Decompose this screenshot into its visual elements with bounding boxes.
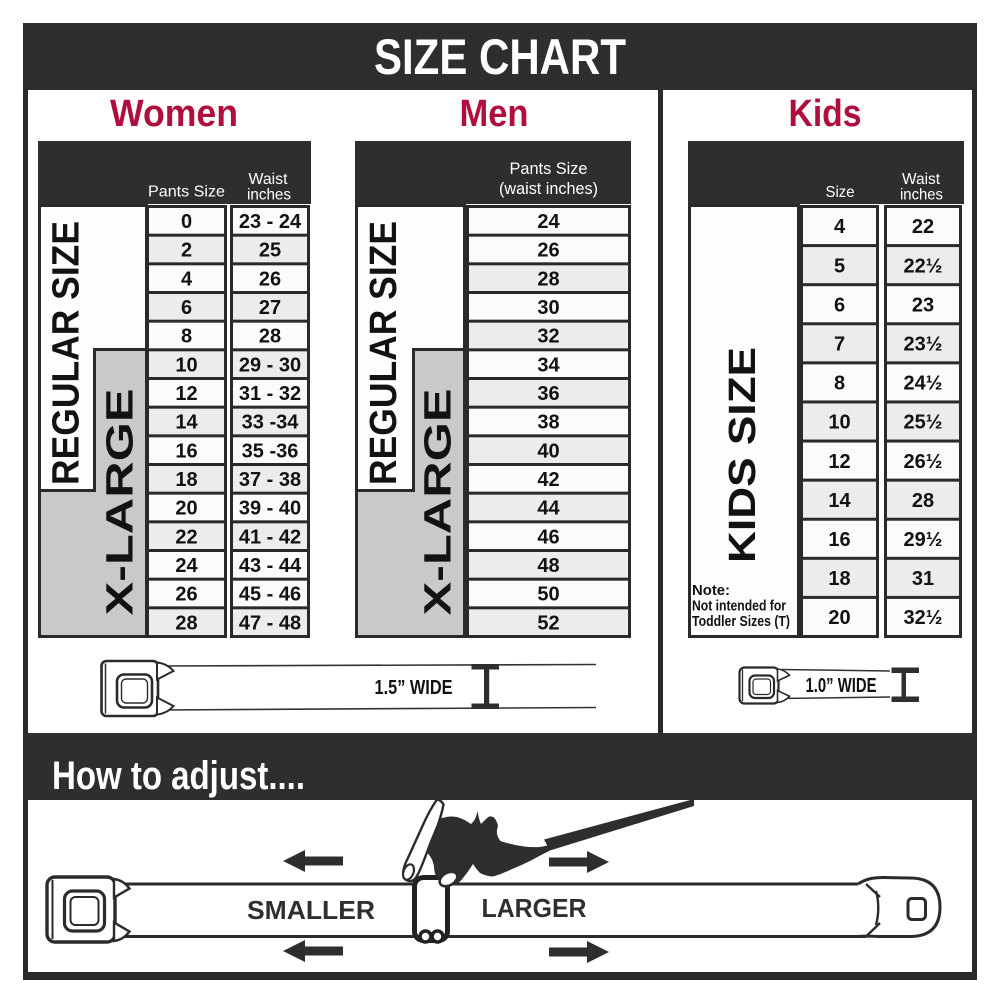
svg-text:29½: 29½ (904, 529, 943, 551)
svg-text:28: 28 (537, 268, 559, 290)
svg-text:31 - 32: 31 - 32 (239, 383, 301, 405)
svg-text:28: 28 (259, 326, 281, 348)
svg-text:37 - 38: 37 - 38 (239, 469, 301, 491)
svg-text:33 -34: 33 -34 (242, 412, 300, 434)
svg-text:KIDS SIZE: KIDS SIZE (722, 347, 764, 563)
svg-text:Waist: Waist (249, 171, 289, 188)
svg-text:6: 6 (181, 297, 192, 319)
svg-text:35 -36: 35 -36 (242, 440, 299, 462)
svg-text:26: 26 (175, 584, 197, 606)
svg-text:Kids: Kids (789, 93, 862, 135)
svg-text:How to adjust....: How to adjust.... (52, 754, 305, 798)
svg-text:Not intended for: Not intended for (692, 598, 786, 615)
svg-text:SMALLER: SMALLER (247, 895, 375, 925)
svg-text:inches: inches (900, 187, 943, 204)
svg-text:5: 5 (834, 255, 845, 277)
svg-text:26½: 26½ (904, 451, 943, 473)
svg-text:12: 12 (175, 383, 197, 405)
svg-text:24: 24 (537, 211, 560, 233)
svg-text:27: 27 (259, 297, 281, 319)
svg-text:14: 14 (828, 490, 851, 512)
svg-text:52: 52 (537, 612, 559, 634)
svg-text:39 - 40: 39 - 40 (239, 498, 301, 520)
svg-text:4: 4 (834, 216, 846, 238)
svg-text:28: 28 (912, 490, 934, 512)
svg-text:Women: Women (110, 93, 238, 135)
svg-text:23½: 23½ (904, 334, 943, 356)
svg-text:22½: 22½ (904, 255, 943, 277)
svg-text:41 - 42: 41 - 42 (239, 526, 301, 548)
svg-text:23: 23 (912, 294, 934, 316)
svg-text:Waist: Waist (902, 171, 941, 188)
svg-text:44: 44 (537, 498, 560, 520)
svg-text:REGULAR SIZE: REGULAR SIZE (46, 221, 88, 485)
svg-text:43 - 44: 43 - 44 (239, 555, 302, 577)
svg-text:24½: 24½ (904, 373, 943, 395)
svg-text:34: 34 (537, 354, 560, 376)
svg-text:20: 20 (175, 498, 197, 520)
svg-text:32½: 32½ (904, 607, 943, 629)
svg-text:22: 22 (175, 526, 197, 548)
svg-text:36: 36 (537, 383, 559, 405)
svg-text:Pants Size: Pants Size (148, 184, 225, 201)
svg-text:4: 4 (181, 268, 193, 290)
svg-text:40: 40 (537, 440, 559, 462)
svg-text:7: 7 (834, 334, 845, 356)
svg-text:26: 26 (537, 240, 559, 262)
svg-text:X-LARGE: X-LARGE (418, 389, 460, 616)
svg-text:6: 6 (834, 294, 845, 316)
svg-text:10: 10 (828, 412, 850, 434)
svg-text:2: 2 (181, 240, 192, 262)
svg-text:18: 18 (175, 469, 197, 491)
svg-text:20: 20 (828, 607, 850, 629)
svg-text:38: 38 (537, 412, 559, 434)
svg-text:SIZE CHART: SIZE CHART (374, 29, 626, 85)
svg-text:Note:: Note: (692, 582, 730, 599)
svg-text:16: 16 (828, 529, 850, 551)
svg-text:24: 24 (175, 555, 198, 577)
svg-text:Size: Size (826, 184, 855, 201)
svg-text:Men: Men (460, 93, 529, 135)
svg-text:1.5” WIDE: 1.5” WIDE (375, 676, 453, 699)
svg-text:Toddler Sizes (T): Toddler Sizes (T) (692, 613, 790, 630)
svg-text:(waist inches): (waist inches) (499, 179, 598, 198)
svg-text:0: 0 (181, 211, 192, 233)
svg-text:LARGER: LARGER (482, 893, 587, 923)
svg-text:REGULAR SIZE: REGULAR SIZE (363, 221, 405, 485)
svg-text:10: 10 (175, 354, 197, 376)
svg-text:45 - 46: 45 - 46 (239, 584, 301, 606)
svg-text:47 - 48: 47 - 48 (239, 612, 301, 634)
svg-text:12: 12 (828, 451, 850, 473)
svg-text:Pants Size: Pants Size (510, 159, 588, 178)
svg-text:22: 22 (912, 216, 934, 238)
svg-text:29 - 30: 29 - 30 (239, 354, 301, 376)
svg-text:46: 46 (537, 526, 559, 548)
svg-text:31: 31 (912, 568, 934, 590)
svg-text:16: 16 (175, 440, 197, 462)
svg-text:X-LARGE: X-LARGE (100, 389, 142, 616)
svg-text:8: 8 (181, 326, 192, 348)
svg-text:14: 14 (175, 412, 198, 434)
svg-text:30: 30 (537, 297, 559, 319)
svg-text:25: 25 (259, 240, 281, 262)
svg-text:48: 48 (537, 555, 559, 577)
svg-text:28: 28 (175, 612, 197, 634)
svg-text:inches: inches (247, 187, 291, 204)
svg-text:25½: 25½ (904, 412, 943, 434)
svg-text:23 - 24: 23 - 24 (239, 211, 302, 233)
svg-text:32: 32 (537, 326, 559, 348)
svg-text:50: 50 (537, 584, 559, 606)
svg-text:18: 18 (828, 568, 850, 590)
svg-text:8: 8 (834, 373, 845, 395)
svg-text:1.0” WIDE: 1.0” WIDE (806, 674, 877, 697)
svg-text:26: 26 (259, 268, 281, 290)
svg-text:42: 42 (537, 469, 559, 491)
